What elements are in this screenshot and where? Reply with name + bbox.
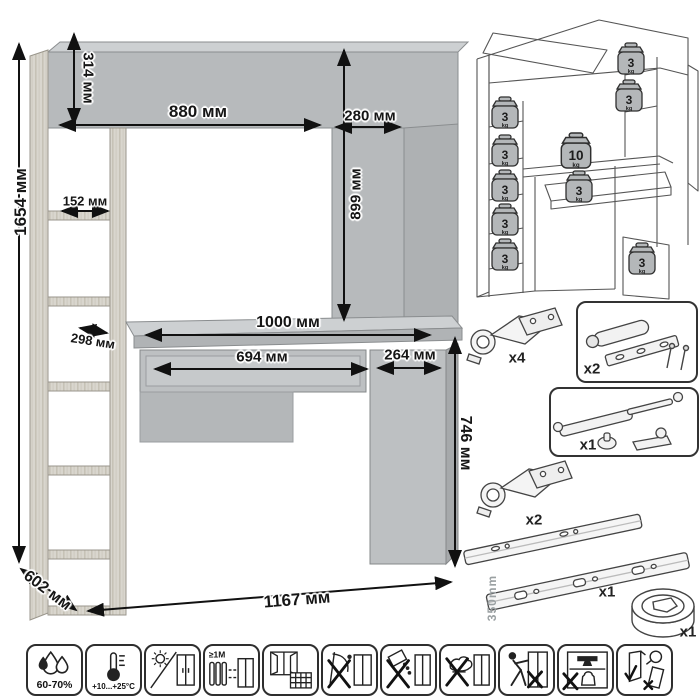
load-limit-schematic: 3 kg 3 kg 3 kg 3 kg 3 kg 3 kg 3 kg 10	[455, 5, 700, 310]
weight-value: 3	[502, 183, 509, 197]
weight-unit: kg	[502, 161, 508, 167]
grommet-qty: x1	[680, 624, 697, 641]
humidity-icon: 60-70%	[26, 644, 83, 696]
tower-shelves	[48, 211, 110, 615]
temperature-range-icon: +10...+25°C	[85, 644, 142, 696]
dim-desktop-width: 1000 мм	[256, 314, 320, 332]
slides-length: 350mm	[485, 575, 499, 621]
keep-upright-icon	[616, 644, 673, 696]
gas-lift-qty: x1	[580, 437, 597, 454]
dim-side-depth: 280 мм	[344, 108, 395, 125]
dim-shelf-depth-upper: 152 мм	[63, 194, 108, 209]
weight-unit: kg	[502, 230, 508, 236]
dim-cabinet-width: 264 мм	[384, 347, 435, 364]
weight-unit: kg	[502, 123, 508, 129]
hutch-right-column	[332, 128, 404, 322]
weight-value: 3	[502, 252, 509, 266]
hinge-x2-qty: x2	[526, 512, 543, 529]
weight-value: 3	[626, 93, 633, 107]
temperature-label: +10...+25°C	[92, 682, 135, 691]
weight-value: 3	[639, 256, 646, 270]
main-furniture-drawing	[0, 0, 475, 645]
weight-unit: kg	[628, 69, 634, 75]
weight-value: 10	[568, 148, 583, 163]
dim-hutch-height: 314 мм	[80, 52, 97, 103]
tower-left-plank	[30, 50, 48, 620]
no-pushing-icon	[498, 644, 555, 696]
hutch-front-panel	[48, 52, 458, 128]
cabinet-door	[370, 350, 446, 564]
heater-distance-label: ≥1М	[209, 650, 225, 660]
weight-value: 3	[628, 56, 635, 70]
desk-apron	[140, 392, 293, 442]
slides-qty: x1	[599, 584, 616, 601]
weight-unit: kg	[502, 265, 508, 271]
weight-unit: kg	[502, 196, 508, 202]
furniture-dimension-sheet: 1654 мм 314 мм 880 мм 280 мм 899 мм 152 …	[0, 0, 700, 698]
weight-unit: kg	[639, 269, 645, 275]
weight-value: 3	[576, 184, 583, 198]
no-heavy-load-icon	[557, 644, 614, 696]
no-direct-sunlight-icon	[144, 644, 201, 696]
dim-hutch-width: 880 мм	[169, 102, 227, 122]
no-spills-icon	[380, 644, 437, 696]
hutch-top-face	[48, 42, 468, 52]
no-wet-cleaning-icon	[439, 644, 496, 696]
dim-opening-height: 899 мм	[348, 168, 365, 219]
hinge-x4-qty: x4	[509, 350, 526, 367]
dim-drawer-width: 694 мм	[236, 349, 287, 366]
weight-unit: kg	[626, 106, 632, 112]
weight-unit: kg	[572, 162, 579, 169]
tower-inner-plank	[110, 128, 126, 615]
push-latch-qty: x2	[584, 361, 601, 378]
care-icons-row: 60-70% +10...+25°C	[26, 644, 673, 696]
weight-value: 3	[502, 148, 509, 162]
weight-value: 3	[502, 217, 509, 231]
humidity-label: 60-70%	[37, 680, 73, 691]
dim-total-height: 1654 мм	[11, 168, 31, 236]
hinge-x2-illustration	[477, 461, 572, 517]
no-sharp-tools-icon	[321, 644, 378, 696]
heater-distance-icon: ≥1М	[203, 644, 260, 696]
weight-value: 3	[502, 110, 509, 124]
weight-unit: kg	[576, 197, 582, 203]
ventilation-icon	[262, 644, 319, 696]
gas-lift-box	[550, 388, 698, 456]
hutch-right-side	[404, 124, 458, 330]
